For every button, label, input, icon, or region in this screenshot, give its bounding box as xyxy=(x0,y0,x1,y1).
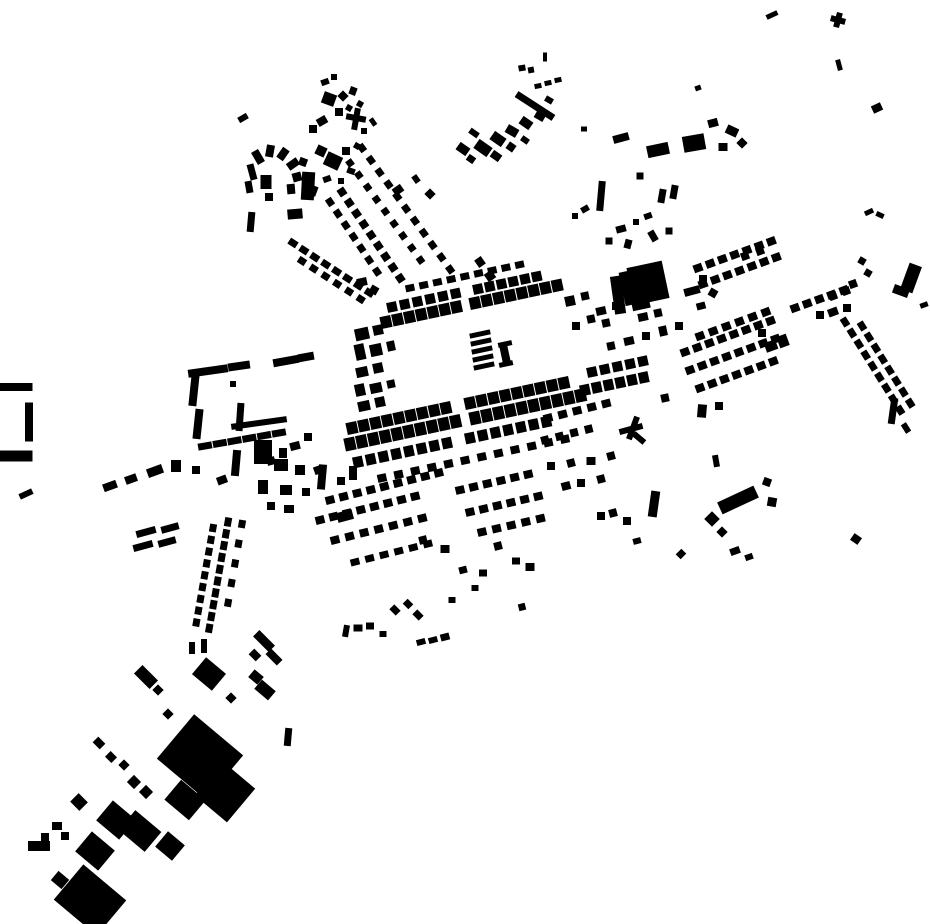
building-footprint xyxy=(298,157,308,167)
building-footprint xyxy=(428,403,441,417)
building-footprint xyxy=(386,301,398,313)
building-footprint xyxy=(414,422,427,437)
building-footprint xyxy=(905,397,916,408)
building-footprint xyxy=(365,485,376,495)
building-footprint xyxy=(871,102,883,113)
building-footprint xyxy=(682,133,706,153)
building-footprint xyxy=(354,383,366,397)
building-footprint xyxy=(633,219,639,225)
building-footprint xyxy=(302,488,310,496)
building-footprint xyxy=(445,264,455,275)
building-footprint xyxy=(601,318,610,327)
building-footprint xyxy=(648,491,661,518)
building-footprint xyxy=(345,421,358,435)
building-footprint xyxy=(626,374,638,387)
building-footprint xyxy=(860,349,871,360)
building-footprint xyxy=(369,416,382,430)
building-footprint xyxy=(436,252,446,263)
building-footprint xyxy=(853,338,864,349)
building-footprint xyxy=(357,400,371,412)
building-footprint xyxy=(124,473,138,485)
building-footprint xyxy=(637,355,649,367)
building-footprint xyxy=(424,188,435,199)
building-footprint xyxy=(493,541,503,551)
building-footprint xyxy=(54,864,126,924)
building-footprint xyxy=(759,256,770,267)
building-footprint xyxy=(271,428,286,437)
building-footprint xyxy=(345,158,355,168)
building-footprint xyxy=(468,128,480,139)
building-footprint xyxy=(647,229,659,242)
building-footprint xyxy=(200,571,208,580)
building-footprint xyxy=(623,517,631,525)
building-footprint xyxy=(189,642,195,654)
building-footprint xyxy=(716,526,727,537)
figure-ground-map xyxy=(0,0,930,924)
building-footprint xyxy=(383,498,394,508)
building-footprint xyxy=(224,517,232,527)
building-footprint xyxy=(344,531,355,541)
building-footprint xyxy=(404,408,417,422)
building-footprint xyxy=(284,505,294,513)
building-footprint xyxy=(606,451,616,461)
building-footprint xyxy=(146,464,164,478)
building-footprint xyxy=(287,238,298,249)
building-footprint xyxy=(874,371,885,382)
building-footprint xyxy=(468,296,481,310)
building-footprint xyxy=(389,219,399,229)
building-footprint xyxy=(771,252,782,263)
building-footprint xyxy=(192,618,200,627)
building-footprint xyxy=(205,547,213,556)
building-footprint xyxy=(669,184,678,199)
building-footprint xyxy=(393,547,403,556)
building-footprint xyxy=(587,457,596,465)
building-footprint xyxy=(519,116,534,130)
building-footprint xyxy=(344,197,355,208)
building-footprint xyxy=(471,345,493,354)
building-footprint xyxy=(527,283,540,297)
building-footprint xyxy=(411,174,421,184)
building-footprint xyxy=(224,598,232,607)
building-footprint xyxy=(160,522,179,533)
building-footprint xyxy=(419,228,429,239)
building-footprint xyxy=(474,256,486,268)
building-footprint xyxy=(638,371,650,384)
building-footprint xyxy=(338,492,349,502)
building-footprint xyxy=(472,585,479,591)
building-footprint xyxy=(316,115,329,127)
building-footprint xyxy=(692,263,703,274)
building-footprint xyxy=(898,386,909,397)
building-footprint xyxy=(135,526,156,538)
building-footprint xyxy=(364,255,374,266)
building-footprint xyxy=(343,436,356,451)
building-footprint xyxy=(428,636,438,644)
building-footprint xyxy=(484,281,496,293)
building-footprint xyxy=(566,458,576,468)
building-footprint xyxy=(0,383,33,391)
building-footprint xyxy=(580,204,590,213)
building-footprint xyxy=(372,195,382,205)
building-footprint xyxy=(765,316,776,327)
building-footprint xyxy=(547,462,555,470)
building-footprint xyxy=(417,513,428,523)
building-footprint xyxy=(247,163,258,180)
building-footprint xyxy=(473,269,483,278)
building-footprint xyxy=(346,167,356,175)
building-footprint xyxy=(205,623,213,633)
building-footprint xyxy=(366,155,376,166)
building-footprint xyxy=(287,184,296,195)
building-footprint xyxy=(328,512,339,522)
building-footprint xyxy=(284,728,293,747)
building-footprint xyxy=(554,77,562,83)
building-footprint xyxy=(492,405,505,420)
building-footprint xyxy=(758,329,766,337)
building-footprint xyxy=(577,479,585,487)
building-footprint xyxy=(416,638,426,646)
building-footprint xyxy=(606,238,613,245)
building-footprint xyxy=(372,266,382,277)
building-footprint xyxy=(697,360,708,371)
building-footprint xyxy=(586,402,597,412)
building-footprint xyxy=(410,491,421,501)
building-footprint xyxy=(225,692,236,703)
building-footprint xyxy=(709,356,720,367)
building-footprint xyxy=(198,583,206,592)
building-footprint xyxy=(449,597,456,603)
building-footprint xyxy=(881,382,892,393)
building-footprint xyxy=(734,265,745,276)
building-footprint xyxy=(543,53,547,62)
building-footprint xyxy=(611,361,623,373)
building-footprint xyxy=(756,360,767,371)
building-footprint xyxy=(741,324,752,335)
building-footprint xyxy=(203,559,211,568)
building-footprint xyxy=(212,439,227,448)
building-footprint xyxy=(518,64,526,71)
building-footprint xyxy=(355,294,366,304)
building-footprint xyxy=(406,475,417,485)
building-footprint xyxy=(468,482,479,492)
building-footprint xyxy=(601,399,612,409)
building-footprint xyxy=(416,442,428,455)
building-footprint xyxy=(546,378,559,392)
building-footprint xyxy=(395,273,406,284)
building-footprint xyxy=(188,374,199,407)
building-footprint xyxy=(18,488,33,499)
building-footprint xyxy=(528,67,535,74)
building-footprint xyxy=(383,179,393,190)
building-footprint xyxy=(450,300,463,314)
building-footprint xyxy=(401,203,411,214)
building-footprint xyxy=(814,294,825,305)
building-footprint xyxy=(602,379,614,392)
building-footprint xyxy=(510,386,523,400)
building-footprint xyxy=(614,376,626,389)
building-footprint xyxy=(480,408,493,423)
building-footprint xyxy=(843,304,851,312)
building-footprint xyxy=(550,393,563,408)
building-footprint xyxy=(694,85,701,92)
building-footprint xyxy=(215,564,223,574)
building-footprint xyxy=(359,528,370,538)
building-footprint xyxy=(473,139,492,157)
building-footprint xyxy=(392,191,402,202)
building-footprint xyxy=(348,232,358,243)
building-footprint xyxy=(521,517,532,527)
building-footprint xyxy=(458,566,467,575)
building-footprint xyxy=(102,480,118,492)
building-footprint xyxy=(719,374,730,385)
building-footprint xyxy=(864,208,874,216)
building-footprint xyxy=(378,429,391,444)
building-footprint xyxy=(134,665,158,689)
building-footprint xyxy=(505,141,516,152)
building-footprint xyxy=(482,479,493,489)
building-footprint xyxy=(512,558,520,565)
building-footprint xyxy=(345,104,353,112)
building-footprint xyxy=(139,785,153,799)
building-footprint xyxy=(439,401,452,415)
building-footprint xyxy=(402,424,415,439)
building-footprint xyxy=(408,543,418,552)
building-footprint xyxy=(660,393,669,402)
building-footprint xyxy=(534,83,542,89)
building-footprint xyxy=(231,450,241,477)
building-footprint xyxy=(531,271,543,283)
building-footprint xyxy=(506,520,517,530)
building-footprint xyxy=(342,273,353,284)
building-footprint xyxy=(213,576,221,586)
building-footprint xyxy=(309,125,317,133)
building-footprint xyxy=(265,144,275,157)
building-footprint xyxy=(279,448,287,458)
building-footprint xyxy=(479,570,487,577)
building-footprint xyxy=(230,381,236,387)
building-footprint xyxy=(420,471,431,481)
building-footprint xyxy=(518,603,526,611)
building-footprint xyxy=(333,208,343,219)
building-footprint xyxy=(766,10,779,20)
building-footprint xyxy=(390,426,403,441)
building-footprint xyxy=(363,182,373,192)
building-footprint xyxy=(416,255,426,265)
building-footprint xyxy=(503,403,516,418)
building-footprint xyxy=(373,524,384,534)
building-footprint xyxy=(522,383,535,397)
building-footprint xyxy=(75,831,115,870)
building-footprint xyxy=(257,431,272,440)
building-footprint xyxy=(441,545,450,553)
building-footprint xyxy=(291,171,302,182)
building-footprint xyxy=(396,495,407,505)
building-footprint xyxy=(543,413,554,423)
building-footprint xyxy=(335,108,343,116)
building-footprint xyxy=(249,649,262,662)
building-footprint xyxy=(393,470,403,480)
building-footprint xyxy=(606,341,615,350)
building-footprint xyxy=(391,312,404,326)
building-footprint xyxy=(875,211,884,219)
building-footprint xyxy=(539,396,552,411)
building-footprint xyxy=(297,352,314,363)
building-footprint xyxy=(519,273,531,285)
building-footprint xyxy=(403,310,416,324)
building-footprint xyxy=(877,353,888,364)
building-footprint xyxy=(399,298,411,310)
building-footprint xyxy=(707,378,718,389)
building-footprint xyxy=(760,307,771,318)
building-footprint xyxy=(658,325,668,336)
building-footprint xyxy=(729,249,740,260)
building-footprint xyxy=(515,421,527,434)
building-footprint xyxy=(258,480,268,494)
building-footprint xyxy=(314,144,327,157)
building-footprint xyxy=(612,302,620,310)
building-footprint xyxy=(261,175,272,189)
building-footprint xyxy=(407,243,417,253)
building-footprint xyxy=(157,536,176,547)
building-footprint xyxy=(192,657,226,691)
building-footprint xyxy=(867,360,878,371)
building-footprint xyxy=(247,212,256,233)
building-footprint xyxy=(402,517,413,527)
building-footprint xyxy=(403,445,415,458)
building-footprint xyxy=(446,275,456,284)
building-footprint xyxy=(487,266,497,275)
building-footprint xyxy=(721,321,732,332)
building-footprint xyxy=(526,563,535,571)
building-footprint xyxy=(515,286,528,300)
building-footprint xyxy=(472,353,494,362)
building-footprint xyxy=(356,243,366,254)
building-footprint xyxy=(704,511,720,527)
building-footprint xyxy=(562,390,575,405)
building-footprint xyxy=(356,100,364,108)
building-footprint xyxy=(342,147,350,155)
building-footprint xyxy=(196,594,204,603)
building-footprint xyxy=(342,625,350,638)
building-footprint xyxy=(426,305,439,319)
building-footprint xyxy=(412,609,423,620)
building-footprint xyxy=(502,423,514,436)
building-footprint xyxy=(743,365,754,376)
building-footprint xyxy=(683,285,701,297)
building-footprint xyxy=(331,266,342,277)
building-footprint xyxy=(623,239,632,250)
building-footprint xyxy=(564,295,576,307)
building-footprint xyxy=(392,411,405,425)
building-footprint xyxy=(632,431,647,445)
building-footprint xyxy=(827,307,839,318)
building-footprint xyxy=(514,260,524,269)
building-footprint xyxy=(848,279,858,289)
building-footprint xyxy=(331,74,337,80)
building-footprint xyxy=(719,143,728,151)
building-footprint xyxy=(850,533,862,545)
building-footprint xyxy=(0,451,33,462)
building-footprint xyxy=(731,369,742,380)
building-footprint xyxy=(919,301,928,308)
building-footprint xyxy=(289,441,301,451)
building-footprint xyxy=(192,466,200,474)
building-footprint xyxy=(572,213,578,219)
building-footprint xyxy=(254,440,272,464)
building-footprint xyxy=(533,491,544,501)
building-footprint xyxy=(366,230,377,241)
building-footprint xyxy=(337,477,345,485)
building-footprint xyxy=(372,362,384,374)
building-footprint xyxy=(637,173,644,180)
building-footprint xyxy=(491,524,502,534)
building-footprint xyxy=(597,512,605,520)
building-footprint xyxy=(694,383,705,394)
building-footprint xyxy=(789,303,800,314)
building-footprint xyxy=(197,441,212,450)
building-footprint xyxy=(132,540,153,552)
building-footprint xyxy=(591,381,603,394)
building-footprint xyxy=(901,422,911,434)
building-footprint xyxy=(657,188,666,203)
building-footprint xyxy=(369,502,380,512)
building-footprint xyxy=(705,258,716,269)
building-footprint xyxy=(450,288,462,300)
building-footprint xyxy=(353,343,366,361)
building-footprint xyxy=(437,290,449,302)
building-footprint xyxy=(416,406,429,420)
building-footprint xyxy=(361,128,367,134)
building-footprint xyxy=(623,336,634,346)
building-footprint xyxy=(217,552,225,562)
building-footprint xyxy=(322,175,332,183)
building-footprint xyxy=(298,245,309,256)
building-footprint xyxy=(355,366,369,378)
building-footprint xyxy=(676,549,687,560)
building-footprint xyxy=(596,181,606,211)
building-footprint xyxy=(475,393,488,407)
building-footprint xyxy=(127,775,141,789)
building-footprint xyxy=(506,498,517,508)
building-footprint xyxy=(653,308,662,317)
building-footprint xyxy=(499,388,512,402)
building-footprint xyxy=(380,631,387,637)
building-footprint xyxy=(692,342,703,353)
building-footprint xyxy=(118,759,129,770)
building-footprint xyxy=(884,364,895,375)
building-footprint xyxy=(615,224,626,233)
building-footprint xyxy=(642,332,650,340)
building-footprint xyxy=(766,236,777,247)
building-footprint xyxy=(267,502,275,510)
building-footprint xyxy=(309,252,320,263)
building-footprint xyxy=(572,322,580,330)
building-footprint xyxy=(424,293,436,305)
building-footprint xyxy=(332,279,343,289)
building-footprint xyxy=(234,539,242,548)
building-footprint xyxy=(209,523,217,532)
building-footprint xyxy=(489,131,506,147)
building-footprint xyxy=(419,281,429,290)
building-footprint xyxy=(352,488,363,498)
building-footprint xyxy=(52,822,62,830)
building-footprint xyxy=(388,521,399,531)
building-footprint xyxy=(717,254,728,265)
building-footprint xyxy=(374,167,384,178)
building-footprint xyxy=(377,473,387,483)
building-footprint xyxy=(273,355,300,367)
